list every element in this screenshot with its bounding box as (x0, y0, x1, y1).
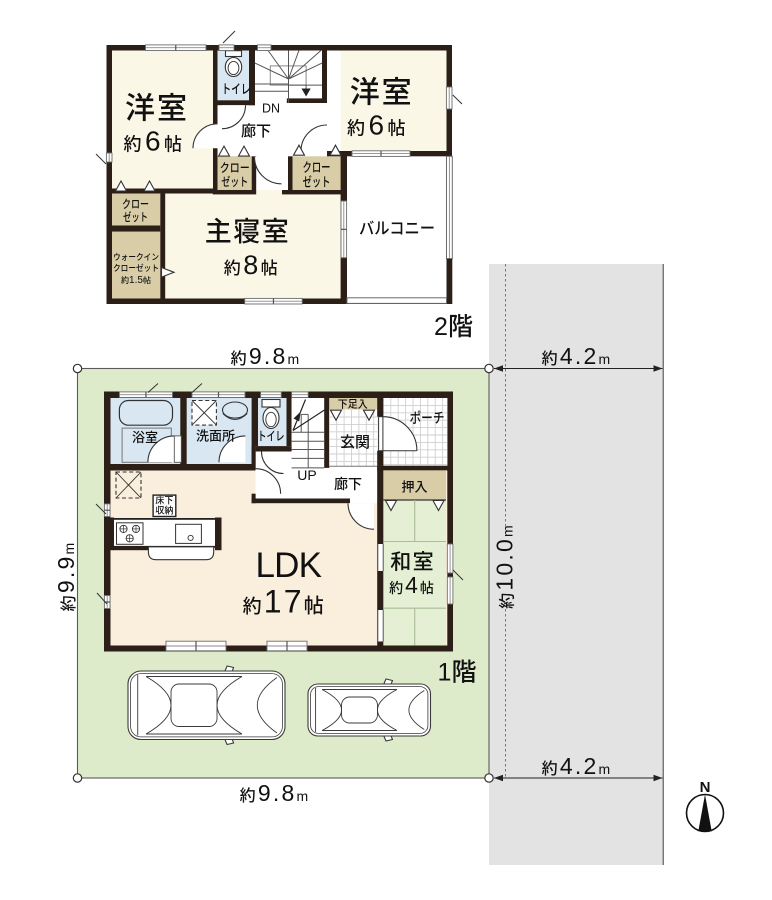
svg-text:1階: 1階 (438, 653, 477, 689)
svg-text:バルコニー: バルコニー (359, 215, 435, 239)
svg-text:トイレ: トイレ (222, 79, 251, 98)
svg-text:押入: 押入 (401, 477, 427, 496)
svg-text:廊下: 廊下 (334, 474, 362, 494)
svg-text:ゼット: ゼット (221, 173, 248, 190)
svg-text:ゼット: ゼット (303, 172, 331, 191)
svg-text:トイレ: トイレ (258, 426, 285, 445)
svg-text:ポーチ: ポーチ (410, 408, 445, 428)
svg-text:ゼット: ゼット (123, 209, 148, 225)
svg-text:下足入: 下足入 (338, 397, 368, 412)
svg-text:玄関: 玄関 (340, 431, 370, 452)
svg-text:N: N (700, 776, 711, 797)
svg-text:廊下: 廊下 (241, 120, 271, 141)
svg-text:2階: 2階 (434, 307, 473, 343)
svg-text:洗面所: 洗面所 (196, 426, 235, 445)
svg-text:DN: DN (262, 98, 280, 117)
svg-text:浴室: 浴室 (132, 427, 158, 446)
svg-text:UP: UP (297, 465, 316, 485)
svg-text:収納: 収納 (155, 504, 173, 517)
